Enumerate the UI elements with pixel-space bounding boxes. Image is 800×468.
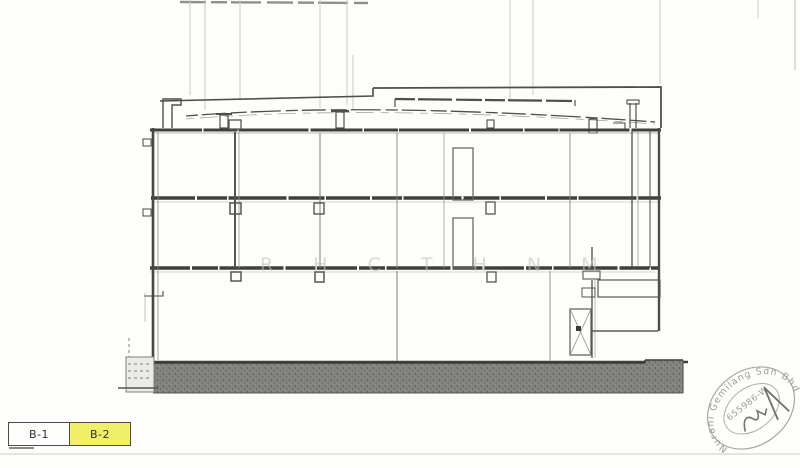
sheet-tab-b2[interactable]: B-2 <box>69 423 130 445</box>
ground-hatch <box>153 360 683 393</box>
right-annex <box>570 247 660 358</box>
company-stamp: Nurani Gemilang Sdn Bhd 655986-W <box>694 358 800 464</box>
roof-outline <box>160 87 661 133</box>
right-exterior-wall <box>632 128 659 331</box>
building-section-drawing <box>0 0 800 464</box>
left-exterior-wall <box>143 128 163 362</box>
sheet-tabbar: B-1 B-2 <box>8 422 131 446</box>
door-frames <box>453 148 473 268</box>
floor-slabs <box>150 130 688 362</box>
stamp-svg: Nurani Gemilang Sdn Bhd 655986-W <box>694 358 800 464</box>
scanned-document-page: R H C T H N M B-1 B-2 Nurani Gemilang Sd… <box>0 0 800 464</box>
door-with-x <box>570 309 591 355</box>
sheet-tab-b1[interactable]: B-1 <box>9 423 69 445</box>
door-knob <box>576 326 581 331</box>
tab-underline-mark <box>9 447 34 449</box>
columns <box>229 120 570 361</box>
